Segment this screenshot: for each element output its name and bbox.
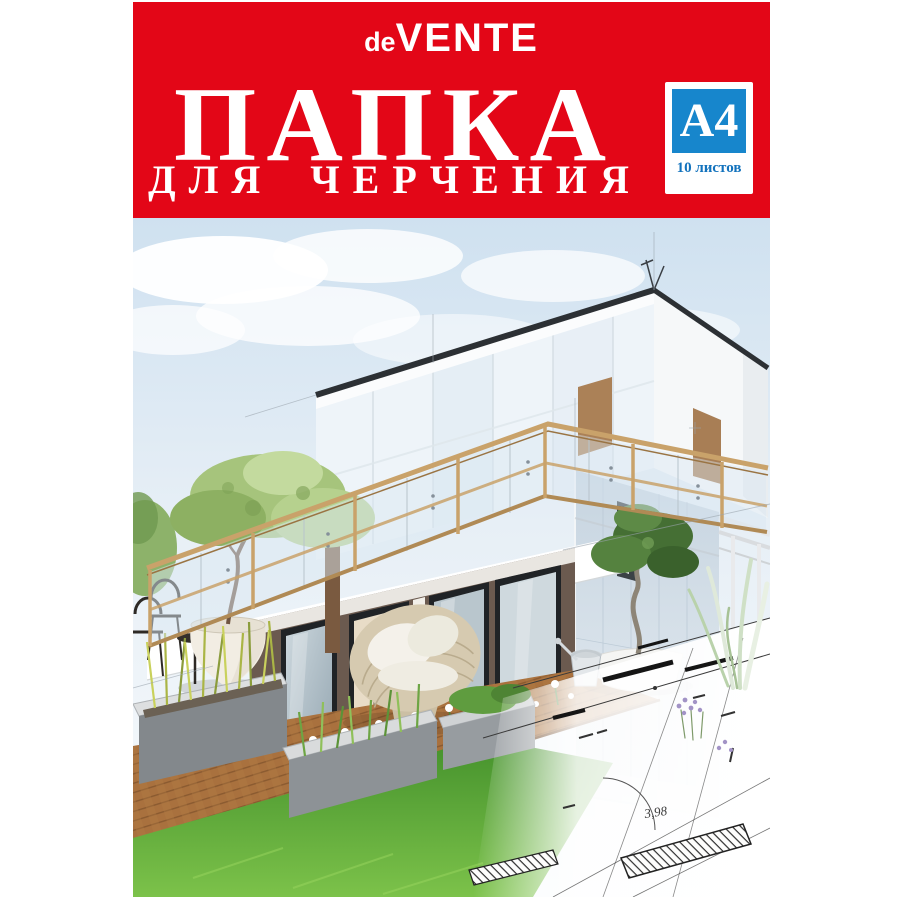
product-cover-page: deVENTE ПАПКА ДЛЯ ЧЕРЧЕНИЯ A4 10 листов (0, 0, 900, 900)
house-illustration: 3,98 (133, 218, 770, 897)
house-illustration-svg: 3,98 (133, 218, 770, 897)
folder-cover: deVENTE ПАПКА ДЛЯ ЧЕРЧЕНИЯ A4 10 листов (133, 2, 770, 897)
product-subtitle: ДЛЯ ЧЕРЧЕНИЯ (133, 160, 657, 200)
cover-header: deVENTE ПАПКА ДЛЯ ЧЕРЧЕНИЯ A4 10 листов (133, 2, 770, 218)
sheet-count-label: 10 листов (665, 160, 753, 177)
brand-logo: deVENTE (133, 18, 770, 58)
brand-name: VENTE (396, 16, 539, 60)
format-badge: A4 10 листов (665, 82, 753, 194)
format-a4-label: A4 (680, 97, 739, 145)
brand-prefix: de (364, 27, 396, 57)
format-a4-box: A4 (672, 89, 746, 153)
